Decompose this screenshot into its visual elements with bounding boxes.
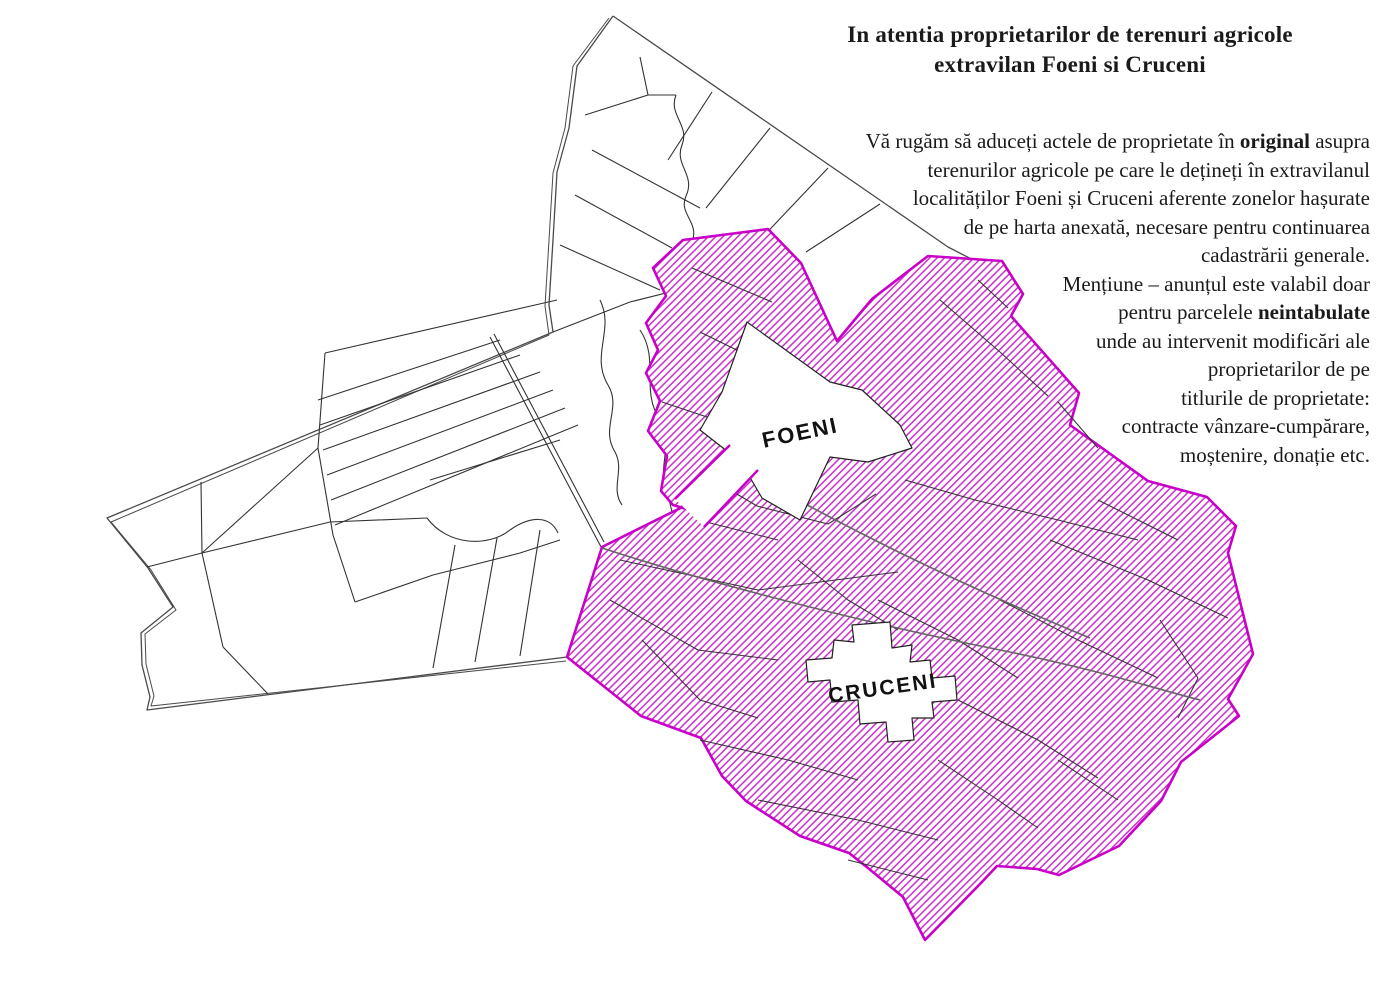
body-text: proprietarilor de pe [1208, 357, 1370, 381]
title-line: extravilan Foeni si Cruceni [790, 50, 1350, 80]
body-text: Vă rugăm să aduceți actele de proprietat… [866, 129, 1240, 153]
body-line: terenurilor agricole pe care le dețineți… [790, 156, 1370, 185]
body-line: moștenire, donație etc. [790, 441, 1370, 470]
announcement-title: In atentia proprietarilor de terenuri ag… [790, 20, 1350, 80]
announcement-page: FOENI CRUCENI In atentia proprietarilor … [0, 0, 1400, 990]
title-line: In atentia proprietarilor de terenuri ag… [790, 20, 1350, 50]
boundary-west-parallel [111, 18, 609, 706]
body-text-bold: neintabulate [1258, 300, 1370, 324]
body-text: cadastrării generale. [1201, 243, 1370, 267]
body-line: pentru parcelele neintabulate [790, 298, 1370, 327]
body-line: titlurile de proprietate: [790, 384, 1370, 413]
body-text-bold: original [1240, 129, 1310, 153]
body-text: terenurilor agricole pe care le dețineți… [927, 158, 1370, 182]
body-line: unde au intervenit modificări ale [790, 327, 1370, 356]
body-line: cadastrării generale. [790, 241, 1370, 270]
boundary-west [107, 16, 613, 710]
body-line: Mențiune – anunțul este valabil doar [790, 270, 1370, 299]
body-text: contracte vânzare-cumpărare, [1122, 414, 1370, 438]
body-text: pentru parcelele [1118, 300, 1258, 324]
body-text: unde au intervenit modificări ale [1096, 329, 1370, 353]
body-text: moștenire, donație etc. [1180, 443, 1370, 467]
body-text: asupra [1310, 129, 1370, 153]
body-line: localităților Foeni și Cruceni aferente … [790, 184, 1370, 213]
body-line: Vă rugăm să aduceți actele de proprietat… [790, 127, 1370, 156]
body-text: localităților Foeni și Cruceni aferente … [913, 186, 1370, 210]
body-text: Mențiune – anunțul este valabil doar [1063, 272, 1370, 296]
body-text: de pe harta anexată, necesare pentru con… [964, 215, 1370, 239]
body-line: proprietarilor de pe [790, 355, 1370, 384]
body-text: titlurile de proprietate: [1181, 386, 1370, 410]
body-line: contracte vânzare-cumpărare, [790, 412, 1370, 441]
announcement-body: Vă rugăm să aduceți actele de proprietat… [790, 127, 1370, 469]
body-line: de pe harta anexată, necesare pentru con… [790, 213, 1370, 242]
